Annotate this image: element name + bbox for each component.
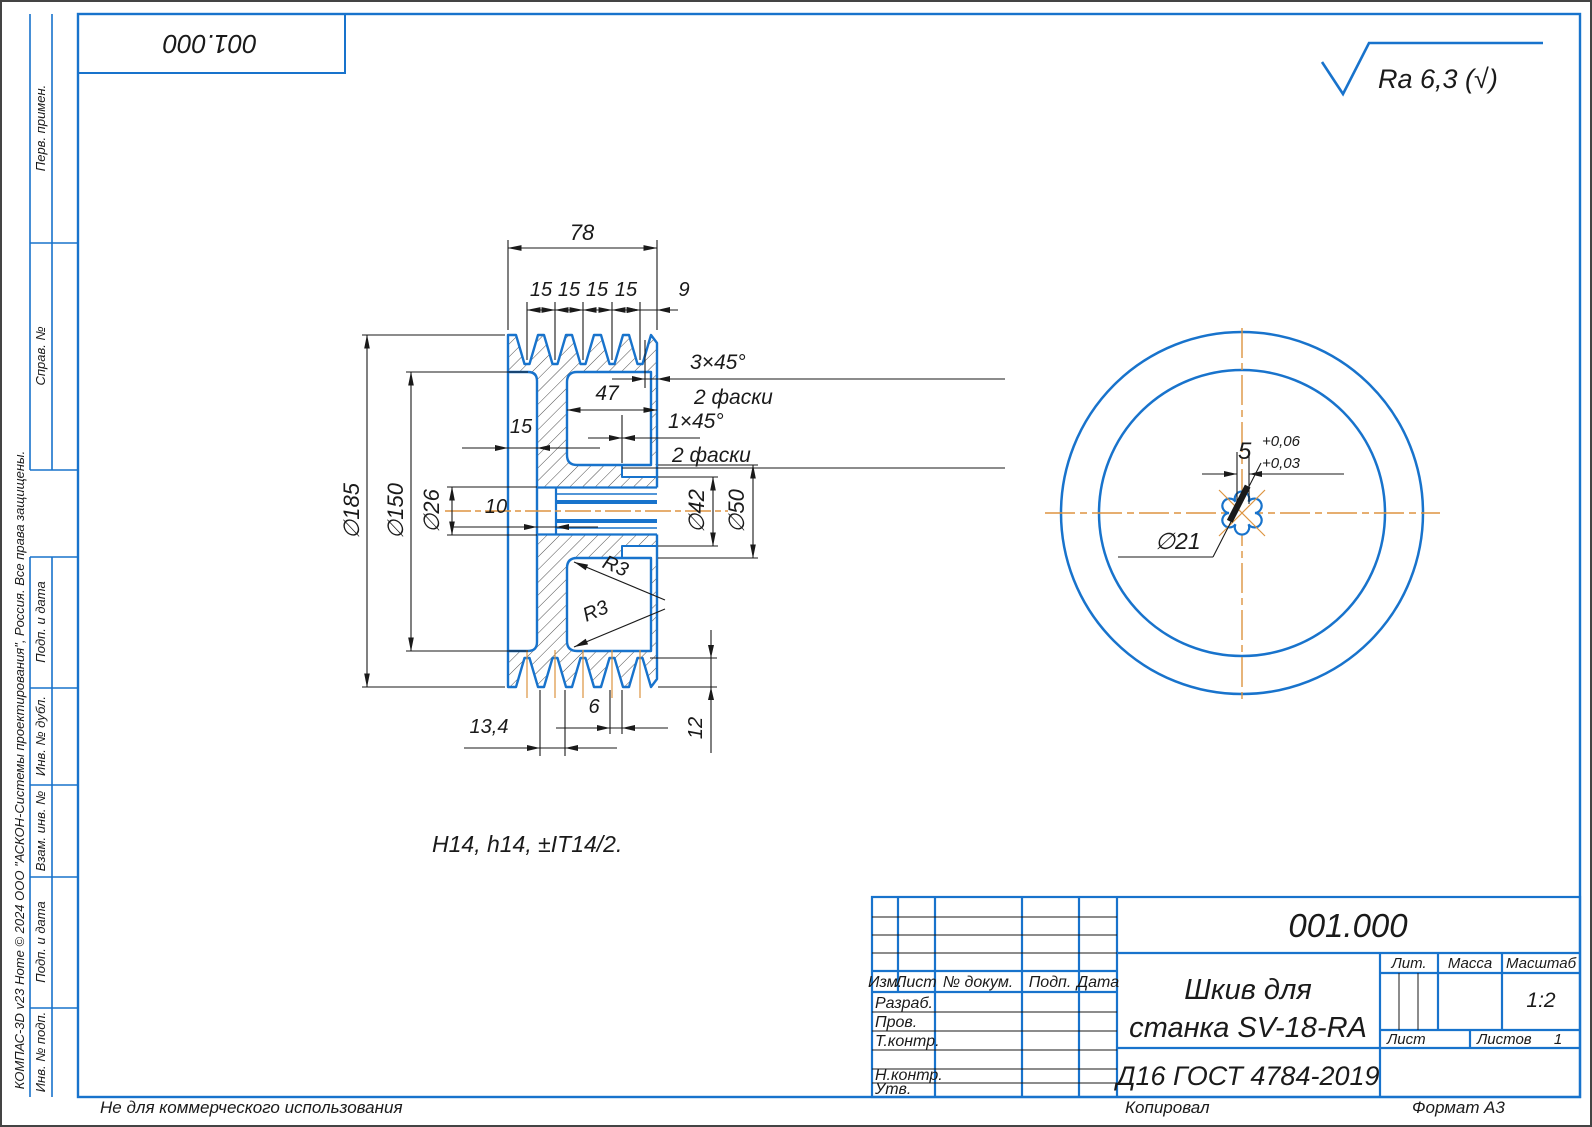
tb-designation: 001.000	[1288, 907, 1408, 944]
margin-label: Перв. примен.	[33, 85, 48, 171]
dim-groove-depth: 12	[685, 717, 707, 739]
tb-list: Лист	[1386, 1031, 1426, 1048]
dim-chamfer-outer: 3×45°	[690, 351, 746, 374]
dim-bore: ∅21	[1155, 528, 1201, 554]
dim-chamfer-inner: 1×45°	[668, 410, 724, 433]
margin-label: Инв. № подп.	[33, 1012, 48, 1093]
dim-d150: ∅150	[383, 482, 408, 539]
dim-keyway: 5	[1238, 438, 1252, 465]
tb-title-line1: Шкив для	[1184, 974, 1312, 1006]
tb-row-prov: Пров.	[875, 1014, 917, 1031]
dim-recess-depth: 15	[510, 416, 533, 438]
margin-label: Взам. инв. №	[33, 791, 48, 871]
footer-not-commercial: Не для коммерческого использования	[100, 1098, 403, 1117]
tb-header-podp: Подп.	[1029, 974, 1072, 991]
tb-row-tkontr: Т.контр.	[875, 1033, 940, 1050]
margin-label: Подп. и дата	[33, 901, 48, 982]
dim-d42: ∅42	[684, 489, 709, 533]
designation-top: 001.000	[162, 29, 257, 59]
tb-header-doc: № докум.	[943, 974, 1013, 991]
dim-pitch: 15	[530, 279, 553, 301]
dim-d50: ∅50	[724, 488, 749, 532]
dim-counterbore-depth: 10	[485, 496, 507, 518]
footer-format-label: Формат	[1412, 1098, 1480, 1117]
tb-row-utv: Утв.	[874, 1081, 911, 1098]
dim-chamfer-outer-note: 2 фаски	[693, 386, 773, 409]
dim-pitch: 15	[615, 279, 638, 301]
footer-copied: Копировал	[1125, 1098, 1210, 1117]
dim-total-width: 78	[570, 220, 595, 245]
tb-header-data: Дата	[1075, 974, 1119, 991]
tb-masshtab: Масштаб	[1506, 955, 1577, 972]
dim-pitch: 15	[558, 279, 581, 301]
tb-massa: Масса	[1448, 955, 1492, 972]
tb-scale: 1:2	[1526, 989, 1556, 1012]
dim-groove-top: 6	[588, 696, 600, 718]
tb-lit: Лит.	[1390, 955, 1426, 972]
tolerance-note: H14, h14, ±IT14/2.	[432, 831, 622, 857]
tb-header-list: Лист	[894, 974, 936, 991]
sheet-border	[1, 1, 1591, 1126]
tb-listov-value: 1	[1554, 1031, 1562, 1048]
tb-row-razrab: Разраб.	[875, 995, 933, 1012]
dim-end: 9	[678, 279, 689, 301]
dim-keyway-tol-upper: +0,06	[1262, 433, 1301, 450]
dim-d26: ∅26	[419, 488, 444, 532]
tb-listov: Листов	[1476, 1031, 1532, 1048]
dim-d185: ∅185	[339, 482, 364, 539]
dim-chamfer-inner-note: 2 фаски	[671, 444, 751, 467]
tb-title-line2: станка SV-18-RA	[1129, 1012, 1367, 1044]
margin-label: Инв. № дубл.	[33, 696, 48, 776]
margin-label: Подп. и дата	[33, 581, 48, 662]
dim-pitch: 15	[586, 279, 609, 301]
dim-groove-offset: 13,4	[470, 716, 509, 738]
margin-label: Справ. №	[33, 326, 48, 385]
dim-recess-width: 47	[595, 382, 620, 405]
footer-format-value: А3	[1483, 1098, 1505, 1117]
drawing-sheet: 001.000 Перв. примен. Справ. № Подп. и д…	[0, 0, 1592, 1127]
dim-keyway-tol-lower: +0,03	[1262, 455, 1301, 472]
copyright-note: КОМПАС-3D v23 Home © 2024 ООО "АСКОН-Сис…	[12, 451, 27, 1089]
roughness-value: Ra 6,3 (√)	[1378, 64, 1498, 94]
tb-material: Д16 ГОСТ 4784-2019	[1113, 1061, 1379, 1091]
